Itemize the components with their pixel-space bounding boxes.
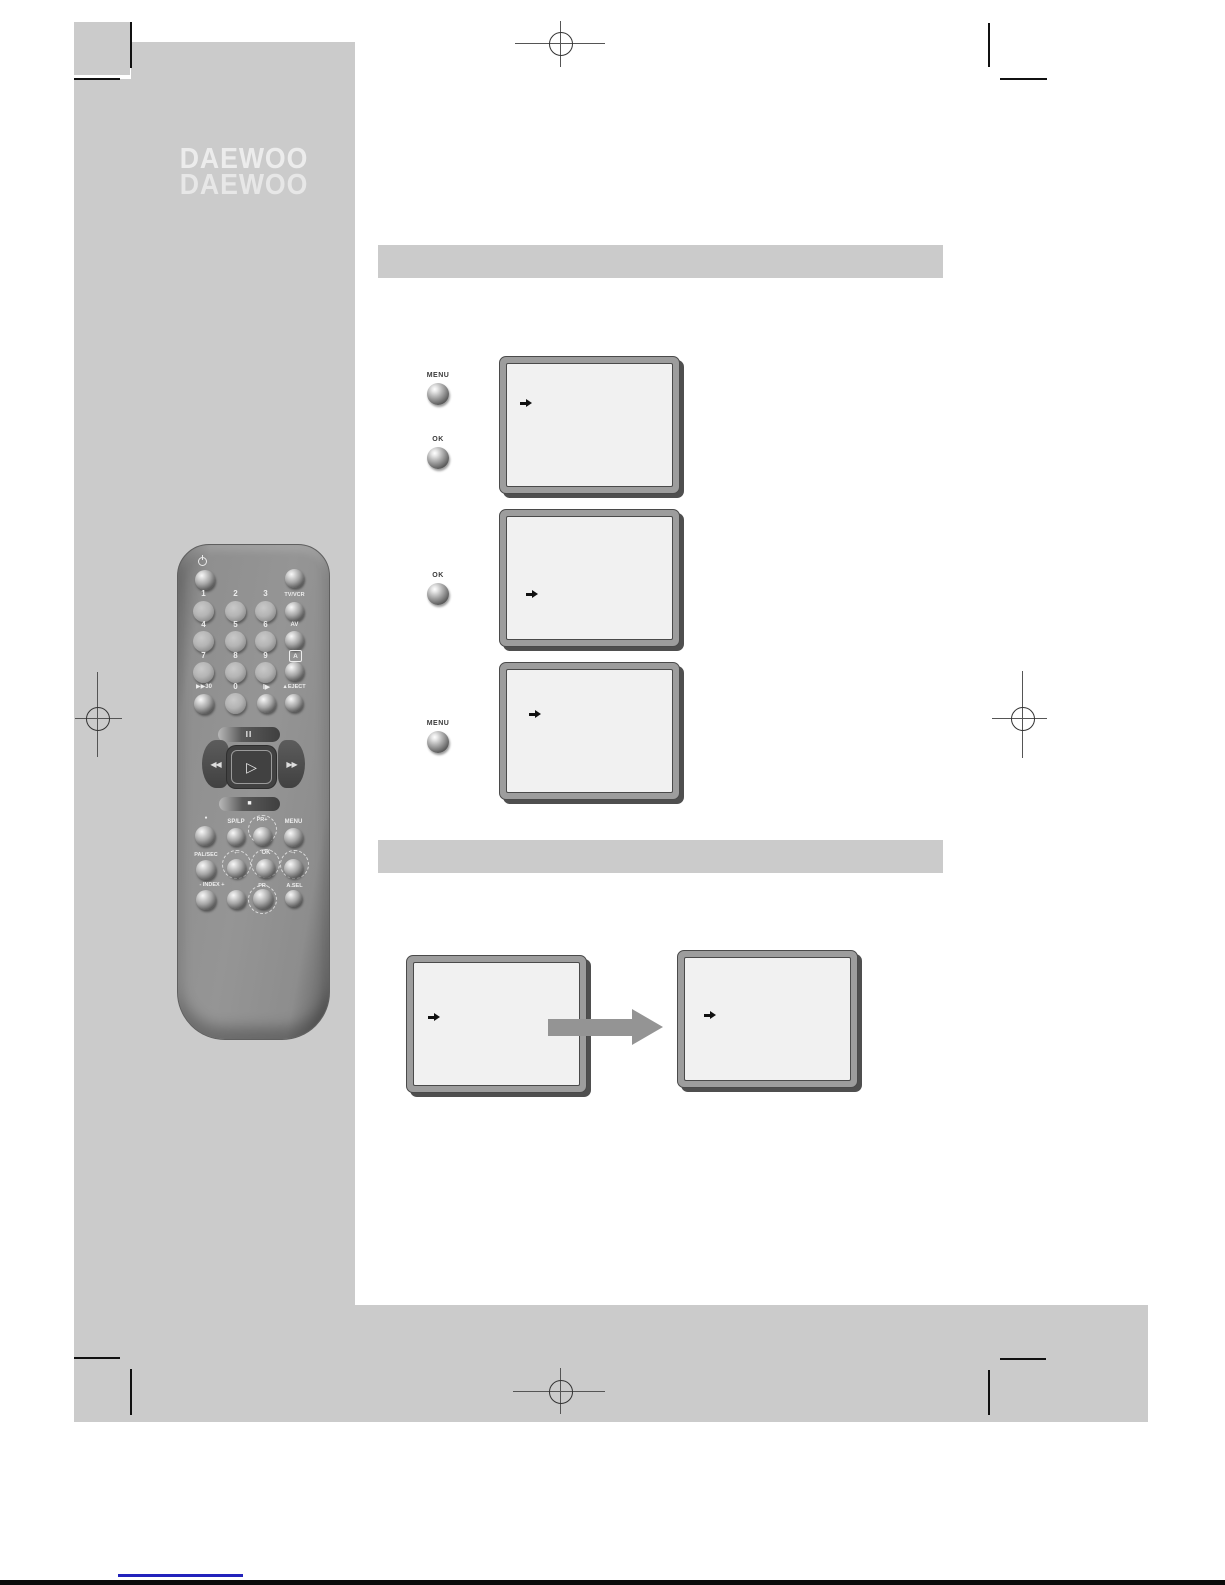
pause-button[interactable]: II [218, 727, 280, 742]
instruction-menu-button-1[interactable]: MENU [419, 372, 457, 405]
stop-icon: ■ [247, 800, 251, 807]
skip-30-button[interactable] [194, 694, 214, 714]
eject-button[interactable] [285, 694, 303, 712]
remote-ok-button[interactable] [256, 859, 275, 878]
footer-blue-line [118, 1574, 243, 1577]
digit-6-button[interactable] [255, 631, 276, 652]
flow-arrow-shaft [548, 1019, 632, 1036]
digit-7-label: 7 [193, 651, 214, 660]
digit-9-button[interactable] [255, 662, 276, 683]
ok-button-label: OK [419, 572, 457, 581]
crop-mark-bottom-left-h [74, 1357, 120, 1359]
menu-button-label: MENU [419, 720, 457, 729]
digit-3-button[interactable] [255, 601, 276, 622]
digit-8-label: 8 [225, 651, 246, 660]
osd-screen-face [684, 957, 851, 1081]
fast-forward-button[interactable]: ▶▶ [278, 740, 305, 788]
sp-lp-button[interactable] [227, 828, 245, 846]
index-plus-button[interactable] [227, 890, 246, 909]
instruction-ok-button-1[interactable]: OK [419, 436, 457, 469]
osd-screen-face [506, 669, 673, 793]
play-button[interactable]: ▷ [227, 746, 276, 788]
nav-left-icon: ← [227, 847, 247, 856]
rewind-icon: ◀◀ [210, 760, 220, 769]
cursor-arrow-icon [529, 710, 541, 719]
fast-forward-icon: ▶▶ [286, 760, 296, 769]
cursor-arrow-icon [428, 1013, 440, 1022]
section-bar-1 [378, 245, 943, 278]
av-label: AV [272, 622, 317, 628]
instruction-ok-button-2[interactable]: OK [419, 572, 457, 605]
digit-8-button[interactable] [225, 662, 246, 683]
bottom-gray-band [74, 1305, 1148, 1422]
digit-9-label: 9 [255, 651, 276, 660]
digit-1-button[interactable] [193, 601, 214, 622]
remote-control: 1 2 3 4 5 6 7 8 9 ▶▶30 0 I▶ TV/VCR AV A … [177, 544, 330, 1040]
footer-black-bar [0, 1580, 1225, 1585]
play-icon: ▷ [246, 759, 257, 776]
index-minus-button[interactable] [196, 890, 216, 910]
osd-screen-5 [677, 950, 858, 1088]
frame-advance-button[interactable] [257, 694, 276, 713]
av-button[interactable] [285, 631, 304, 650]
crop-mark-top-right-h [1000, 78, 1047, 80]
nav-right-icon: → [283, 847, 303, 856]
cursor-arrow-icon [520, 399, 532, 408]
a-sel-button[interactable] [285, 890, 302, 907]
remote-ok-label: OK [247, 850, 285, 856]
digit-5-label: 5 [225, 620, 246, 629]
remote-menu-label: MENU [271, 819, 316, 825]
digit-4-button[interactable] [193, 631, 214, 652]
digit-5-button[interactable] [225, 631, 246, 652]
osd-screen-face [506, 363, 673, 487]
pr-up-button[interactable] [253, 827, 272, 846]
index-label: - INDEX + [185, 882, 239, 888]
nav-left-button[interactable] [227, 859, 246, 878]
brand-logo-line2: DAEWOO [163, 172, 325, 198]
menu-button-ball-icon[interactable] [427, 383, 449, 405]
crop-mark-top-right-v [988, 23, 990, 67]
crop-mark-top-left-v [130, 22, 132, 68]
audio-button[interactable] [285, 662, 304, 681]
manual-page: DAEWOO DAEWOO MENU OK OK MENU [0, 0, 1225, 1585]
pal-sec-label: PAL/SEC [184, 852, 228, 858]
osd-screen-face [506, 516, 673, 640]
record-button[interactable] [195, 826, 215, 846]
eject-label: ▲EJECT [269, 684, 319, 690]
remote-top-right-button[interactable] [285, 569, 304, 588]
digit-0-button[interactable] [225, 693, 246, 714]
section-bar-2 [378, 840, 943, 873]
menu-button-ball-icon[interactable] [427, 731, 449, 753]
cursor-arrow-icon [526, 590, 538, 599]
crop-mark-bottom-right-h [1000, 1358, 1046, 1360]
pal-sec-button[interactable] [196, 860, 216, 880]
ok-button-label: OK [419, 436, 457, 445]
digit-2-label: 2 [225, 589, 246, 598]
digit-2-button[interactable] [225, 601, 246, 622]
brand-logo: DAEWOO DAEWOO [163, 146, 325, 198]
instruction-menu-button-2[interactable]: MENU [419, 720, 457, 753]
crop-mark-bottom-right-v [988, 1370, 990, 1415]
pr-down-button[interactable] [253, 889, 273, 909]
a-sel-label: A.SEL [272, 883, 317, 889]
menu-button-label: MENU [419, 372, 457, 381]
power-icon [198, 555, 207, 565]
osd-screen-3 [499, 662, 680, 800]
tv-vcr-button[interactable] [285, 602, 304, 621]
ok-button-ball-icon[interactable] [427, 583, 449, 605]
sidebar-strip [74, 79, 131, 1305]
osd-screen-1 [499, 356, 680, 494]
crop-corner-square [74, 22, 130, 75]
rewind-button[interactable]: ◀◀ [202, 740, 229, 788]
cursor-arrow-icon [704, 1011, 716, 1020]
crop-mark-top-left-h [74, 78, 120, 80]
flow-arrow-head-icon [632, 1009, 663, 1045]
remote-menu-button[interactable] [284, 828, 303, 847]
ok-button-ball-icon[interactable] [427, 447, 449, 469]
power-button[interactable] [195, 570, 215, 590]
tv-vcr-label: TV/VCR [272, 592, 317, 598]
digit-7-button[interactable] [193, 662, 214, 683]
pause-icon: II [246, 730, 252, 739]
digit-4-label: 4 [193, 620, 214, 629]
nav-right-button[interactable] [284, 859, 303, 878]
audio-a-label: A [289, 650, 302, 662]
stop-button[interactable]: ■ [219, 797, 280, 811]
record-dot-icon: ● [201, 815, 211, 821]
crop-mark-bottom-left-v [130, 1369, 132, 1415]
digit-1-label: 1 [193, 589, 214, 598]
osd-screen-2 [499, 509, 680, 647]
